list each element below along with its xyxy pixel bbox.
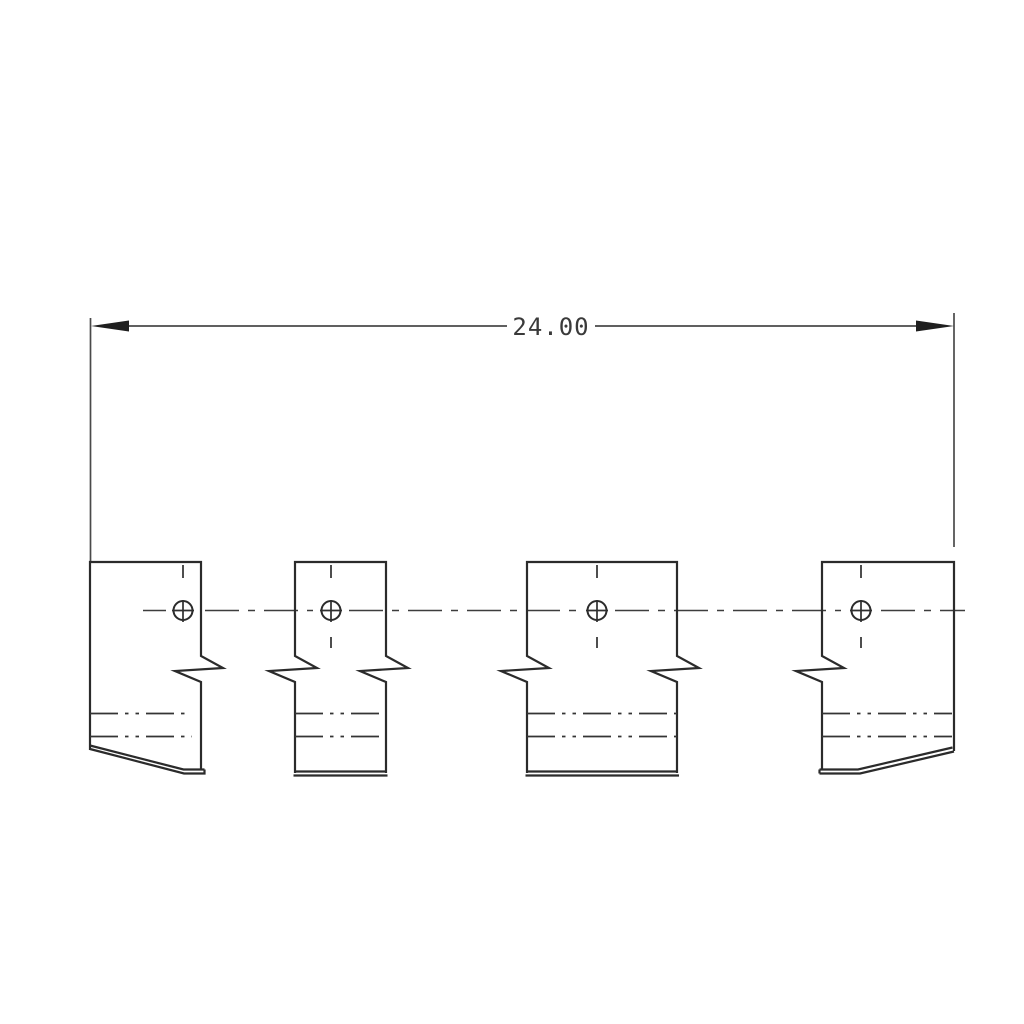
part-1-outline — [90, 562, 223, 770]
dimension-arrow-left-icon — [91, 321, 129, 332]
part-3-wide-middle-clip — [501, 562, 699, 776]
part-3-outline — [501, 562, 699, 773]
part-4-outline — [796, 562, 954, 770]
part-2-outline — [269, 562, 408, 773]
hole-2 — [320, 565, 342, 648]
dimension-arrow-right-icon — [916, 321, 954, 332]
drawing-canvas: 24.00 — [0, 0, 1024, 1024]
part-2-narrow-middle-clip — [269, 562, 408, 776]
drawing-page: 24.00 — [0, 0, 1024, 1024]
part-4-bottom-inner-edge — [820, 748, 953, 770]
dimension-group: 24.00 — [91, 313, 955, 561]
part-4-right-end-clip — [796, 562, 954, 774]
dimension-value: 24.00 — [512, 313, 589, 341]
part-1-left-end-clip — [90, 562, 223, 774]
part-1-bottom-inner-edge — [90, 746, 205, 770]
hole-1 — [172, 565, 194, 622]
hole-3 — [586, 565, 608, 648]
hole-4 — [850, 565, 872, 648]
